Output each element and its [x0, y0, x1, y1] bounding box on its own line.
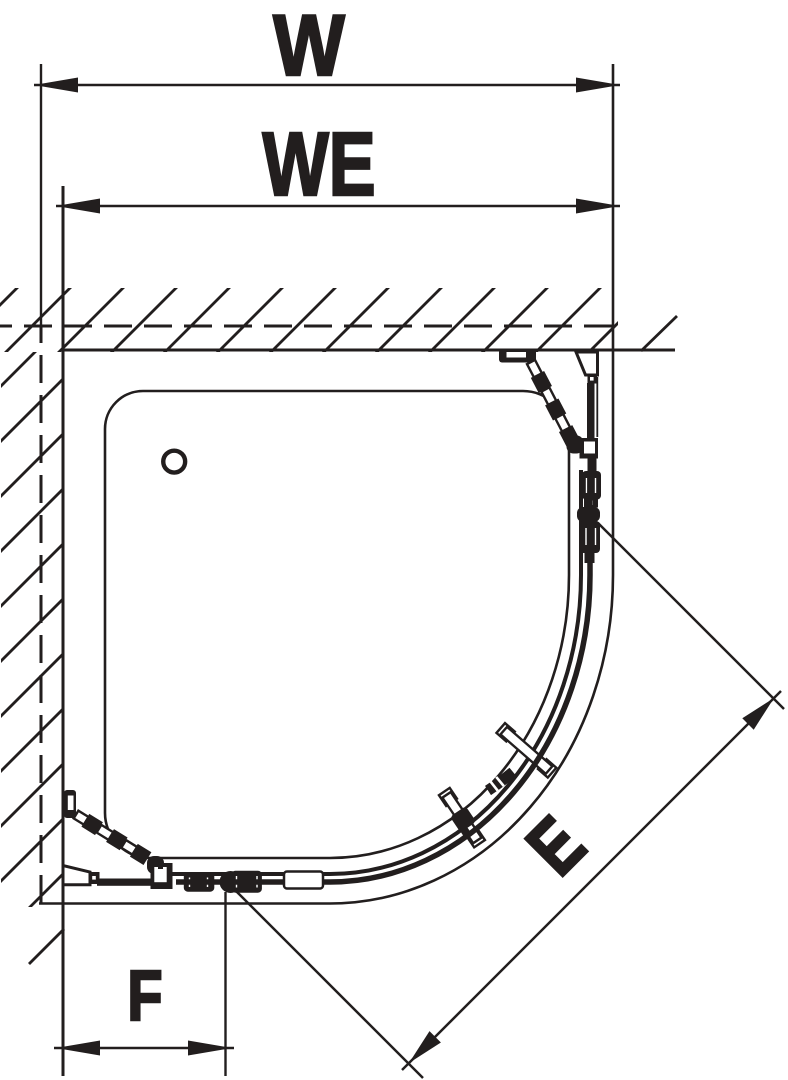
svg-text:F: F — [127, 956, 162, 1035]
svg-text:WE: WE — [262, 115, 375, 215]
svg-text:W: W — [273, 0, 345, 94]
